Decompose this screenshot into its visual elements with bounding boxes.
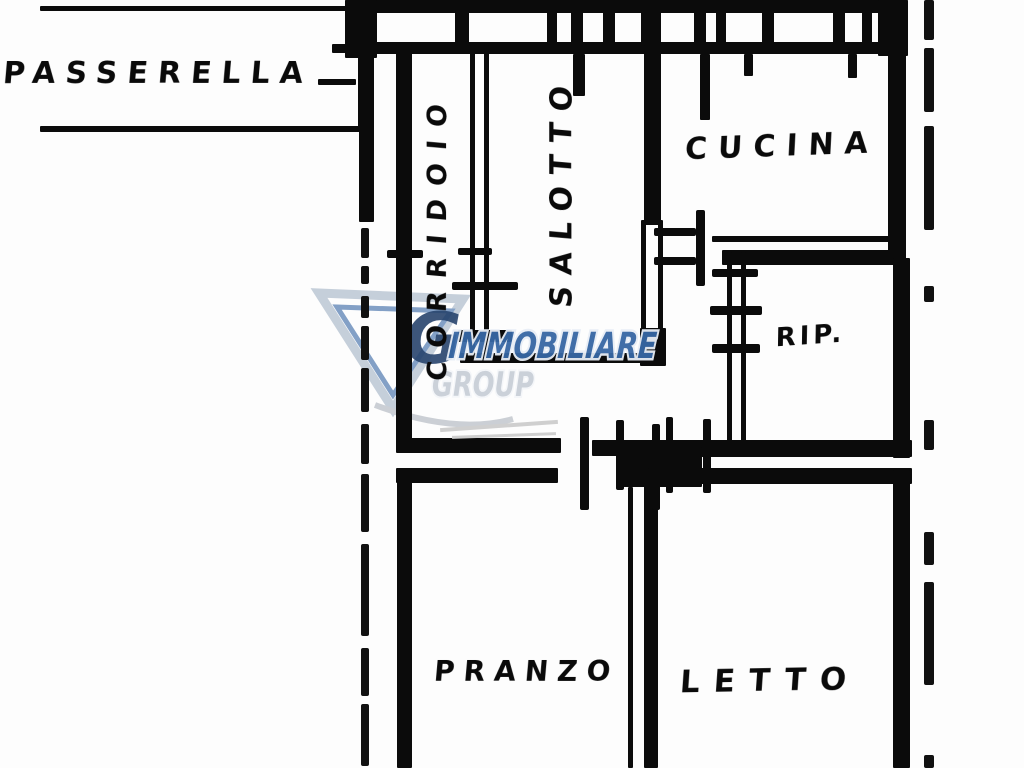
watermark-immobiliare-text: IMMOBILIARE [448,328,673,370]
floorplan-canvas: G GROUP PASSERELLACORRIDOIOSALOTTOCUCINA… [0,0,1024,768]
watermark-over-layer: IMMOBILIARE [0,0,1024,768]
immobiliare-label: IMMOBILIARE [447,326,658,367]
